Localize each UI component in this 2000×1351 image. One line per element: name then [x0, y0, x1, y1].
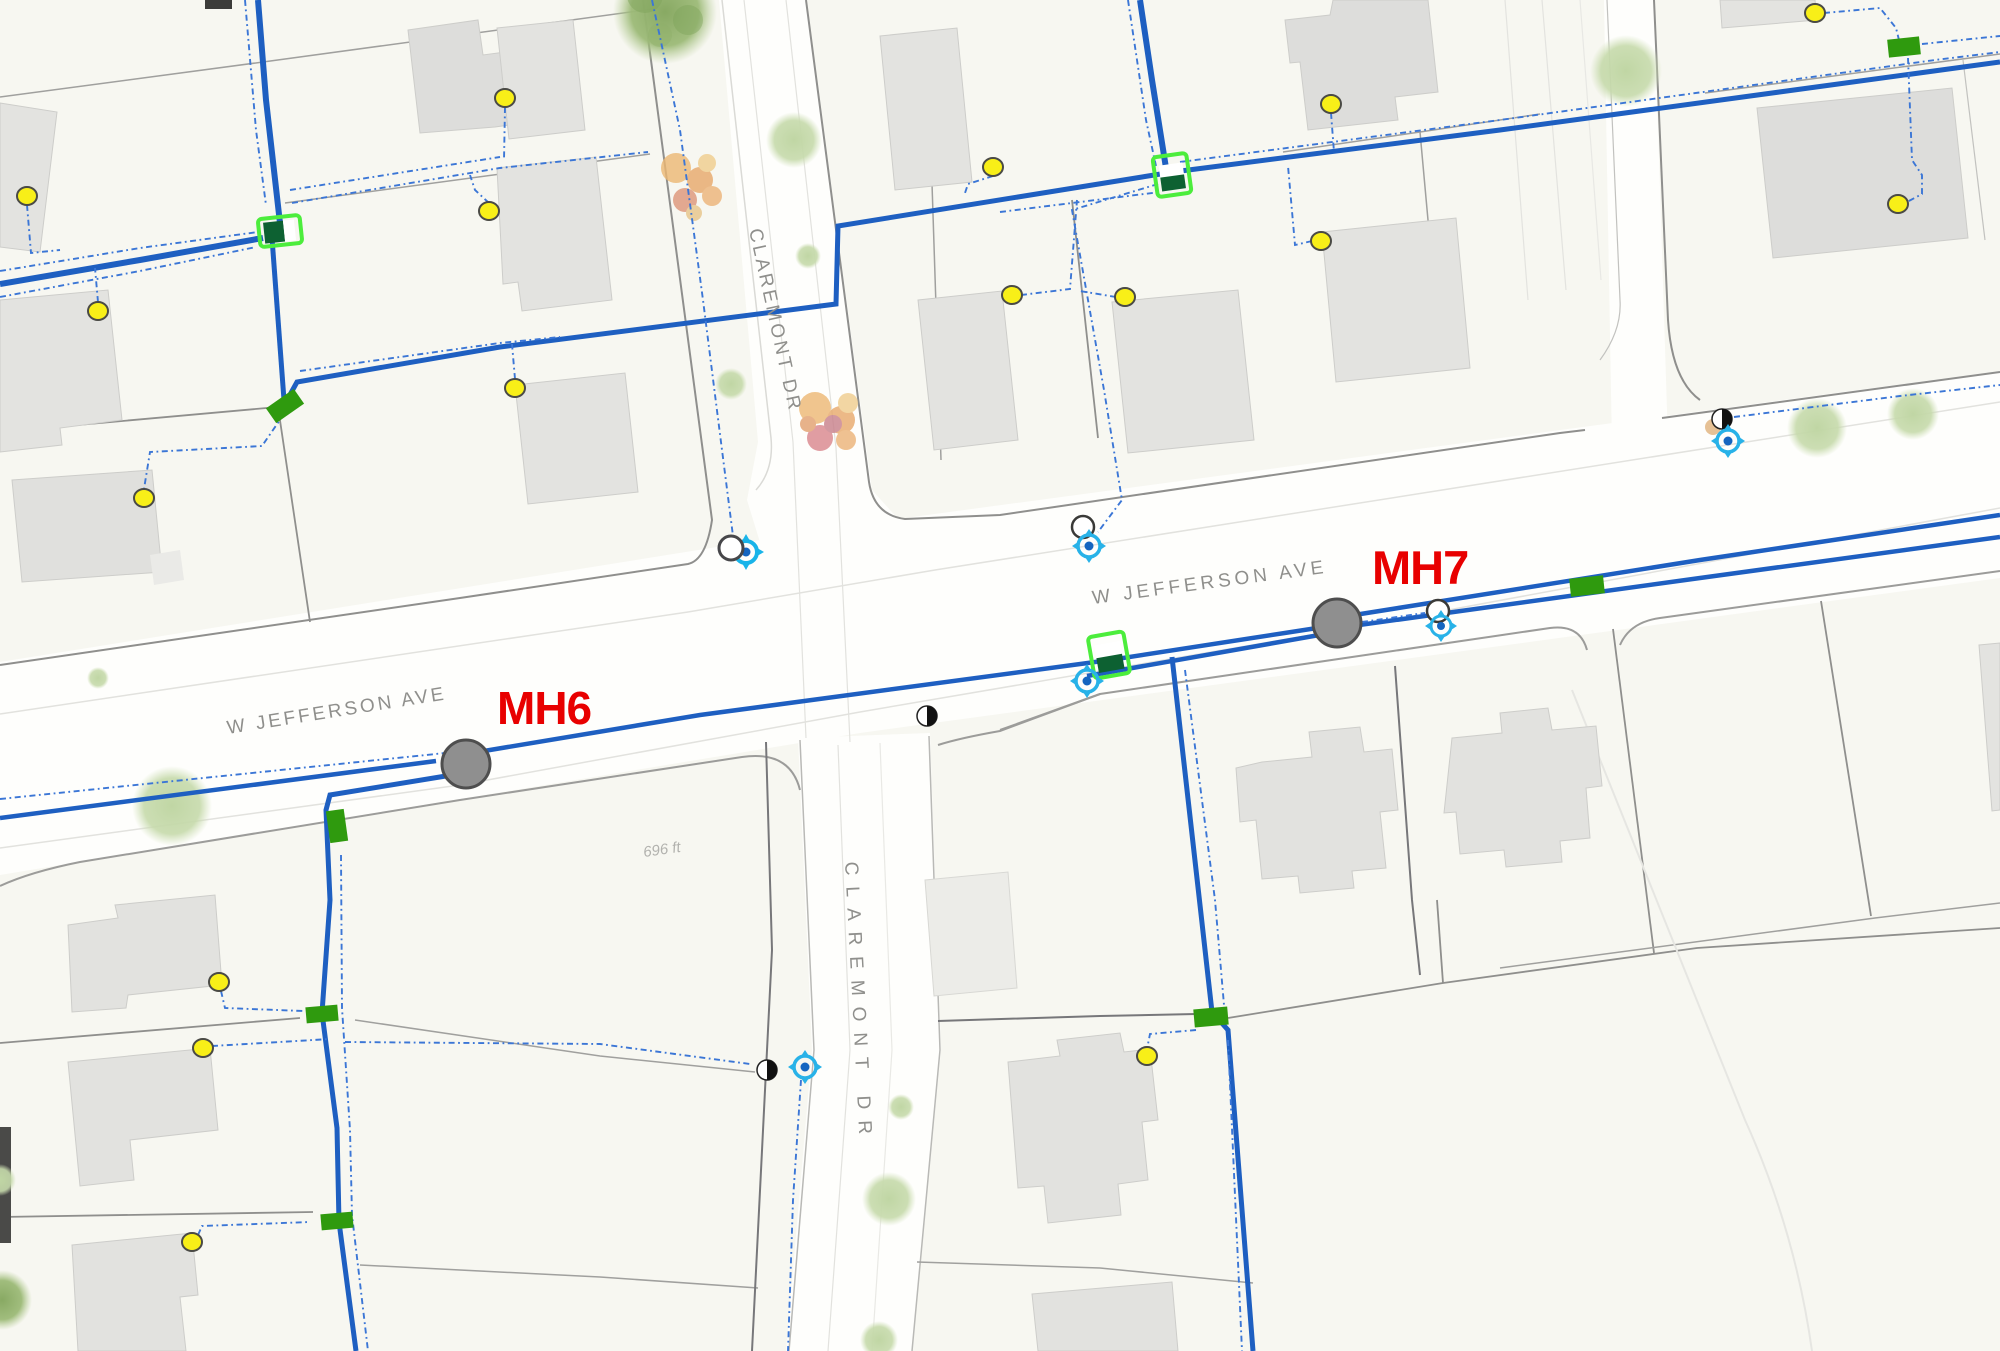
svg-text:MH6: MH6 [497, 682, 591, 734]
svg-text:MH7: MH7 [1372, 541, 1468, 594]
